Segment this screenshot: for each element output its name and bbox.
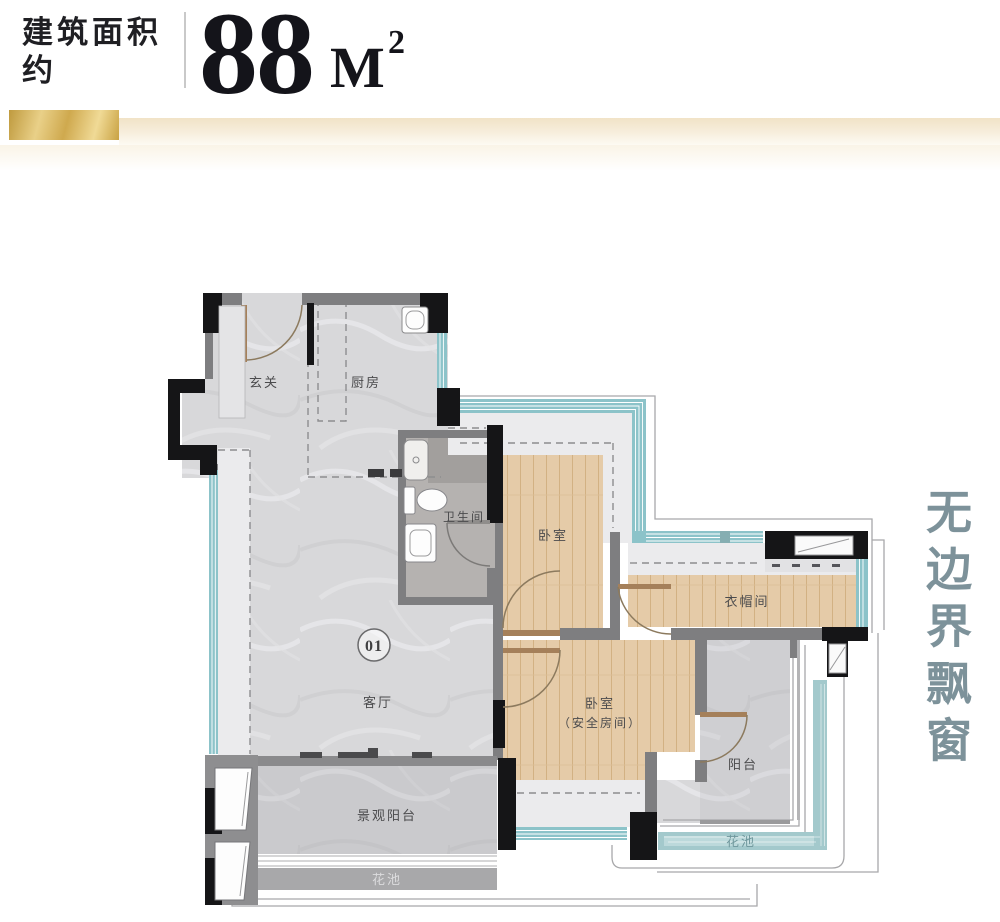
label-kitchen: 厨房 xyxy=(351,375,381,390)
window-kitchen xyxy=(437,333,447,390)
bedroom1-door-leaf xyxy=(503,630,560,636)
label-bedroom1: 卧室 xyxy=(538,528,568,543)
sill-handle xyxy=(368,748,378,758)
unit-badge-label: 01 xyxy=(365,638,383,655)
label-bedroom2-note: （安全房间） xyxy=(558,715,642,730)
shower-tray xyxy=(404,440,428,480)
balcony-floor-ext xyxy=(657,780,700,823)
balcony-door-leaf xyxy=(700,712,747,717)
label-living-room: 客厅 xyxy=(363,695,393,710)
planter-window-1 xyxy=(215,768,252,830)
label-flower-bed-left: 花池 xyxy=(372,872,402,887)
balcony-shade xyxy=(700,640,790,823)
toilet-bowl xyxy=(417,489,447,511)
sill-tick xyxy=(412,752,432,758)
label-cloakroom: 衣帽间 xyxy=(724,594,769,609)
unit-badge: 01 xyxy=(358,629,390,661)
bedroom2-door-leaf xyxy=(503,648,560,653)
planter-window-2 xyxy=(215,842,250,900)
sill-tick xyxy=(338,752,368,758)
label-bedroom2: 卧室 xyxy=(585,696,615,711)
sill-tick-cloak xyxy=(832,564,840,567)
sill-tick xyxy=(300,752,322,758)
label-bathroom: 卫生间 xyxy=(443,510,485,524)
label-flower-bed-right: 花池 xyxy=(726,834,756,849)
window-left xyxy=(209,470,218,754)
floor-areas xyxy=(182,293,866,890)
bedroom1-bay-right xyxy=(603,413,632,543)
window-bedroom2 xyxy=(516,827,627,840)
toilet-tank xyxy=(404,487,415,514)
label-balcony: 阳台 xyxy=(728,757,758,772)
stove-mark xyxy=(368,469,384,477)
sill-tick-cloak xyxy=(792,564,800,567)
left-bay-zone xyxy=(218,448,250,758)
entry-cabinet xyxy=(219,306,245,418)
cloakroom-door-leaf xyxy=(618,584,671,589)
stove-mark xyxy=(390,469,402,477)
sill-tick-cloak xyxy=(812,564,820,567)
label-entry: 玄关 xyxy=(249,375,279,390)
floor-plan: 01 玄关 厨房 卫生间 卧室 衣帽间 客厅 卧室 （安全房间） 阳台 景观阳台… xyxy=(0,0,1000,922)
window-cloakroom-right xyxy=(856,557,868,628)
sill-tick-cloak xyxy=(772,564,780,567)
label-view-balcony: 景观阳台 xyxy=(357,808,417,823)
